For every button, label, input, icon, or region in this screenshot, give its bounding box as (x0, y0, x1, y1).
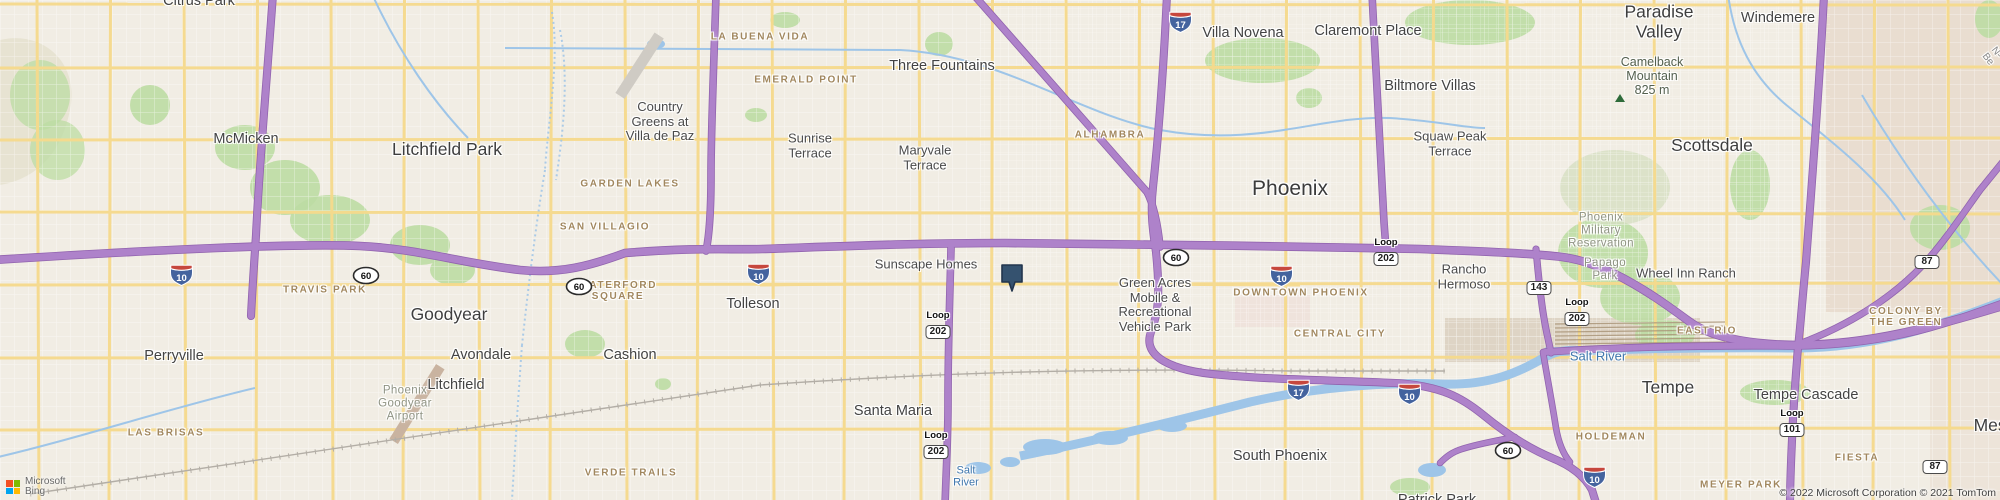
map-base-layer (0, 0, 2000, 500)
microsoft-logo-icon (6, 480, 20, 494)
microsoft-bing-logo[interactable]: Microsoft Bing (6, 477, 66, 497)
bing-logo-text: Microsoft Bing (25, 477, 66, 497)
map-canvas[interactable]: Citrus ParkMcMickenLitchfield ParkGoodye… (0, 0, 2000, 500)
map-copyright: © 2022 Microsoft Corporation © 2021 TomT… (1779, 487, 1996, 499)
mountain-peak-icon (1615, 94, 1625, 102)
